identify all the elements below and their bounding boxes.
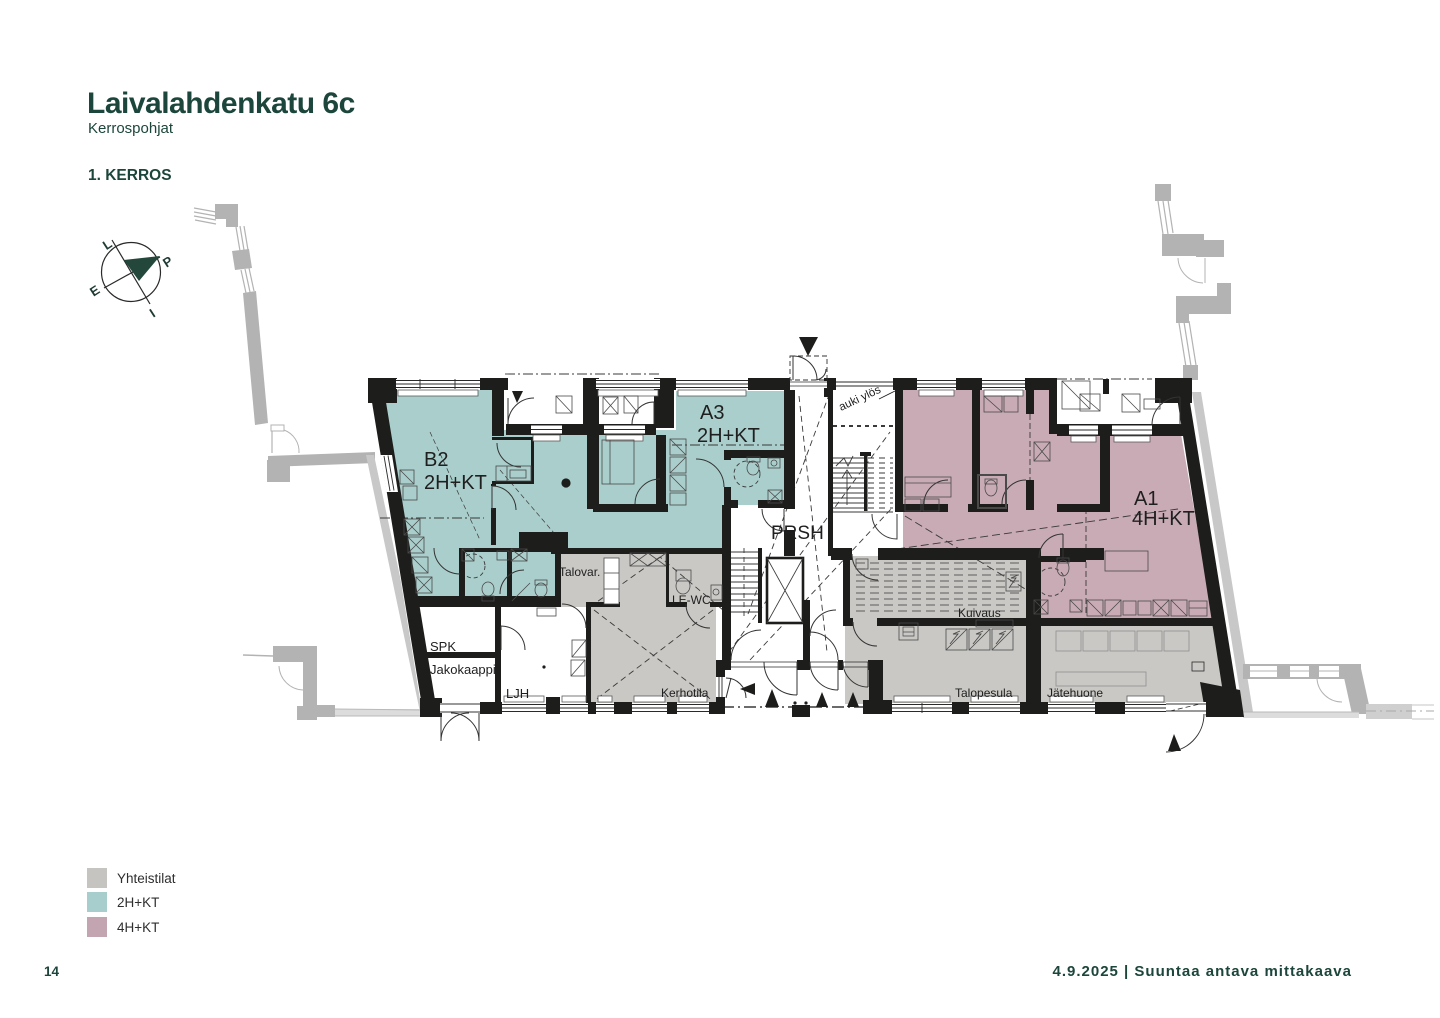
svg-text:L: L xyxy=(100,236,115,253)
svg-text:LJH: LJH xyxy=(506,686,529,701)
svg-text:SPK: SPK xyxy=(430,639,456,654)
svg-text:E: E xyxy=(87,282,103,299)
svg-text:4.9.2025 | Suuntaa antava mitt: 4.9.2025 | Suuntaa antava mittakaava xyxy=(1052,963,1352,980)
svg-text:Kerrospohjat: Kerrospohjat xyxy=(88,120,174,137)
svg-text:A3: A3 xyxy=(700,402,724,424)
svg-text:Laivalahdenkatu 6c: Laivalahdenkatu 6c xyxy=(87,87,355,120)
svg-text:A1: A1 xyxy=(1134,488,1158,510)
svg-text:Jätehuone: Jätehuone xyxy=(1047,686,1103,700)
svg-text:4H+KT: 4H+KT xyxy=(117,920,159,935)
svg-text:Jakokaappi: Jakokaappi xyxy=(430,662,496,677)
svg-text:1. KERROS: 1. KERROS xyxy=(88,167,172,184)
svg-text:I: I xyxy=(147,306,158,321)
svg-text:Kuivaus: Kuivaus xyxy=(958,606,1001,620)
svg-text:PRSH: PRSH xyxy=(771,523,824,544)
svg-text:LE-WC: LE-WC xyxy=(672,593,711,607)
svg-text:2H+KT: 2H+KT xyxy=(697,425,760,447)
svg-text:B2: B2 xyxy=(424,449,448,471)
svg-text:Kerhotila: Kerhotila xyxy=(661,686,709,700)
svg-text:Talovar.: Talovar. xyxy=(559,565,600,579)
svg-text:P: P xyxy=(160,253,176,270)
svg-text:14: 14 xyxy=(44,964,60,979)
svg-text:4H+KT: 4H+KT xyxy=(1132,508,1195,530)
svg-text:Talopesula: Talopesula xyxy=(955,686,1013,700)
svg-text:2H+KT: 2H+KT xyxy=(424,472,487,494)
svg-text:Yhteistilat: Yhteistilat xyxy=(117,871,176,886)
svg-text:2H+KT: 2H+KT xyxy=(117,895,159,910)
